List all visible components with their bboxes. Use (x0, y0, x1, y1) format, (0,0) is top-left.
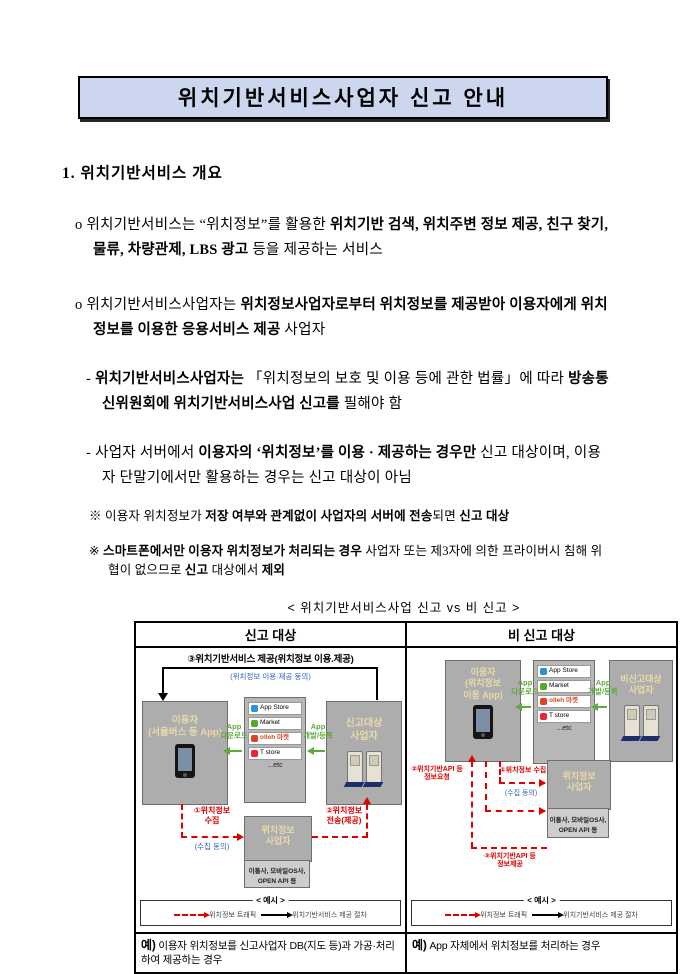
comparison-table: 신고 대상 비 신고 대상 ③위치기반서비스 제공(위치정보 이용.제공) (위… (134, 621, 678, 974)
black-arrow-line-horizontal (162, 667, 378, 669)
transfer-arrowhead-icon (363, 797, 371, 804)
example-row: 예) 이용자 위치정보를 신고사업자 DB(지도 등)과 가공·처리하여 제공하… (136, 932, 676, 972)
server-icon (327, 751, 401, 783)
example-prefix: 예) (412, 938, 427, 952)
badge-label: Market (549, 683, 569, 690)
request-dashed-line-vertical (485, 761, 487, 811)
document-page: 위치기반서비스사업자 신고 안내 1. 위치기반서비스 개요 o 위치기반서비스… (0, 0, 680, 974)
legend-red-dashed-arrow-icon (445, 914, 475, 916)
legend-black-arrow-icon (261, 914, 287, 916)
android-market-badge: Market (537, 680, 591, 693)
provider-box: 비신고대상 사업자 (609, 660, 673, 762)
app-download-arrow-line (229, 750, 242, 752)
text-run: 대상에서 (208, 563, 261, 577)
provide-dashed-line-horizontal (471, 847, 547, 849)
t-store-icon (540, 713, 547, 720)
legend-title: < 예시 > (252, 895, 289, 906)
legend-box: < 예시 > 위치정보 트래픽 위치기반서비스 제공 절차 (140, 900, 401, 926)
section-heading: 1. 위치기반서비스 개요 (62, 161, 614, 183)
bullet: - (86, 445, 91, 461)
app-register-arrowhead-icon (591, 703, 598, 711)
legend-black-label: 위치기반서비스 제공 절차 (292, 910, 367, 920)
page-title: 위치기반서비스사업자 신고 안내 (178, 87, 508, 110)
smartphone-icon (473, 705, 493, 739)
server-tower-icon (366, 751, 382, 783)
app-store-icon (540, 668, 547, 675)
app-store-box: App Store Market olleh 마켓 T store ...etc (533, 660, 595, 764)
transfer-dashed-line-horizontal (312, 836, 368, 838)
panel-non-report-target: 이용자 (위치정보 이용 App) App Store Market olleh… (407, 648, 676, 932)
comparison-body-row: ③위치기반서비스 제공(위치정보 이용.제공) (위치정보 이용·제공 동의) … (136, 648, 676, 932)
paragraph-lbs-overview: o 위치기반서비스는 “위치정보”를 활용한 위치기반 검색, 위치주변 정보 … (62, 213, 614, 263)
server-tower-icon (624, 705, 640, 737)
collect-arrowhead-icon (237, 833, 244, 841)
text-run: 「위치정보의 보호 및 이용 등에 관한 법률」에 따라 (244, 371, 568, 387)
text-run-bold: 위치기반서비스사업자는 (95, 371, 244, 387)
olleh-market-badge: olleh 마켓 (537, 695, 591, 708)
provider-box: 신고대상 사업자 (326, 701, 402, 805)
text-run: 등을 제공하는 서비스 (248, 242, 383, 258)
app-register-label: App 개발/등록 (300, 722, 336, 741)
request-label: ②위치기반API 등 정보요청 (407, 766, 467, 784)
bullet: ※ (89, 509, 102, 523)
badge-label: T store (549, 713, 569, 720)
provide-dashed-line-vertical (471, 761, 473, 848)
request-dashed-line-horizontal (485, 810, 545, 812)
badge-label: olleh 마켓 (549, 698, 578, 705)
service-provision-arrow-label: ③위치기반서비스 제공(위치정보 이용.제공) (136, 651, 405, 665)
bullet: o (75, 217, 83, 233)
example-report-target: 예) 이용자 위치정보를 신고사업자 DB(지도 등)과 가공·처리하여 제공하… (136, 934, 407, 972)
collect-label: ①위치정보 수집 (186, 806, 238, 826)
badge-label: App Store (260, 705, 289, 712)
app-download-label: App 다운로드 (507, 678, 543, 697)
text-run-bold: 스마트폰에서만 이용자 위치정보가 처리되는 경우 (103, 544, 362, 558)
android-market-icon (251, 720, 258, 727)
app-download-arrow-line (521, 706, 531, 708)
table-caption: < 위치기반서비스사업 신고 vs 비 신고 > (134, 597, 674, 616)
app-register-arrow-line (597, 706, 607, 708)
paragraph-lbs-provider: o 위치기반서비스사업자는 위치정보사업자로부터 위치정보를 제공받아 이용자에… (62, 293, 614, 343)
legend-black-label: 위치기반서비스 제공 절차 (563, 910, 638, 920)
collect-dashed-line-horizontal (181, 836, 239, 838)
user-box-label: 이용자 (서울버스 등 App) (143, 702, 227, 740)
app-download-arrowhead-icon (223, 747, 230, 755)
consent-note: (위치정보 이용·제공 동의) (136, 671, 405, 682)
location-provider-subtypes: 이통사, 모바일OS사, OPEN API 등 (244, 860, 310, 888)
location-provider-label: 위치정보 사업자 (548, 761, 610, 794)
legend-red-dashed-arrow-icon (174, 914, 204, 916)
black-arrowhead-down-icon (158, 693, 168, 701)
olleh-market-icon (540, 698, 547, 705)
collect-arrowhead-icon (539, 779, 546, 787)
text-run: 이용자 위치정보가 (105, 509, 205, 523)
user-box: 이용자 (위치정보 이용 App) (445, 660, 521, 762)
legend-black-arrow-icon (532, 914, 558, 916)
text-run-bold: 이용자의 ‘위치정보’를 이용 · 제공하는 경우만 (198, 445, 476, 461)
location-provider-subtypes: 이통사, 모바일OS사, OPEN API 등 (547, 808, 609, 838)
location-provider-box: 위치정보 사업자 (547, 760, 611, 810)
olleh-market-icon (251, 735, 258, 742)
t-store-icon (251, 750, 258, 757)
bullet: - (86, 371, 91, 387)
provide-label: ③위치기반API 등 정보제공 (473, 853, 547, 871)
collect-consent-note: (수집 동의) (497, 788, 545, 798)
app-download-label: App 다운로드 (216, 722, 252, 741)
bullet: o (75, 297, 83, 313)
legend-red-label: 위치정보 트래픽 (209, 910, 256, 920)
app-store-icon (251, 705, 258, 712)
example-non-report-target: 예) App 자체에서 위치정보를 처리하는 경우 (407, 934, 676, 972)
badge-label: Market (260, 720, 280, 727)
example-text: App 자체에서 위치정보를 처리하는 경우 (427, 940, 601, 952)
location-provider-label: 위치정보 사업자 (245, 817, 311, 848)
smartphone-icon (175, 744, 195, 778)
badge-label: App Store (549, 668, 578, 675)
etc-label: ...etc (537, 725, 591, 732)
provide-arrowhead-up-icon (468, 755, 476, 762)
text-run-bold: 신고 (185, 563, 208, 577)
app-register-arrowhead-icon (307, 747, 314, 755)
app-register-label: App 개발/등록 (585, 678, 621, 697)
collect-label: ①위치정보 수집 (495, 767, 551, 776)
app-store-badge: App Store (248, 702, 302, 715)
legend-red-label: 위치정보 트래픽 (480, 910, 527, 920)
server-tower-icon (347, 751, 363, 783)
collect-consent-note: (수집 동의) (186, 841, 238, 852)
server-tower-icon (643, 705, 659, 737)
badge-label: T store (260, 750, 280, 757)
text-run: 위치기반서비스는 “위치정보”를 활용한 (87, 217, 331, 233)
panel-report-target: ③위치기반서비스 제공(위치정보 이용.제공) (위치정보 이용·제공 동의) … (136, 648, 407, 932)
paragraph-law-requirement: - 위치기반서비스사업자는 「위치정보의 보호 및 이용 등에 관한 법률」에 … (62, 367, 614, 417)
header-non-report-target: 비 신고 대상 (407, 623, 676, 646)
app-store-badge: App Store (537, 665, 591, 678)
transfer-label: ②위치정보 전송(제공) (314, 806, 374, 826)
text-run: 위치기반서비스사업자는 (87, 297, 241, 313)
text-run-bold: 저장 여부와 관계없이 사업자의 서버에 전송 (205, 509, 432, 523)
header-report-target: 신고 대상 (136, 623, 407, 646)
text-run: 되면 (433, 509, 460, 523)
text-run: 사업자 (281, 322, 326, 338)
note-smartphone-only: ※ 스마트폰에서만 이용자 위치정보가 처리되는 경우 사업자 또는 제3자에 … (62, 542, 614, 581)
location-provider-box: 위치정보 사업자 (244, 816, 312, 862)
request-arrowhead-icon (539, 807, 546, 815)
user-box: 이용자 (서울버스 등 App) (142, 701, 228, 805)
text-run: 필해야 함 (340, 396, 402, 412)
server-icon (610, 705, 672, 737)
t-store-badge: T store (248, 747, 302, 760)
android-market-badge: Market (248, 717, 302, 730)
app-store-box: App Store Market olleh 마켓 T store ...etc (244, 697, 306, 803)
legend-box: < 예시 > 위치정보 트래픽 위치기반서비스 제공 절차 (411, 900, 672, 926)
app-register-arrow-line (313, 750, 325, 752)
document-title-box: 위치기반서비스사업자 신고 안내 (78, 76, 608, 119)
t-store-badge: T store (537, 710, 591, 723)
olleh-market-badge: olleh 마켓 (248, 732, 302, 745)
text-run-bold: 신고 대상 (459, 509, 509, 523)
example-prefix: 예) (141, 938, 156, 952)
text-run: 사업자 서버에서 (95, 445, 198, 461)
app-download-arrowhead-icon (515, 703, 522, 711)
legend-title: < 예시 > (523, 895, 560, 906)
badge-label: olleh 마켓 (260, 735, 289, 742)
provider-box-label: 신고대상 사업자 (327, 702, 401, 743)
bullet: ※ (89, 544, 100, 558)
text-run-bold: 제외 (262, 563, 285, 577)
paragraph-server-case: - 사업자 서버에서 이용자의 ‘위치정보’를 이용 · 제공하는 경우만 신고… (62, 441, 614, 491)
note-server-transfer: ※ 이용자 위치정보가 저장 여부와 관계없이 사업자의 서버에 전송되면 신고… (62, 507, 614, 526)
etc-label: ...etc (248, 762, 302, 769)
comparison-header-row: 신고 대상 비 신고 대상 (136, 623, 676, 648)
collect-dashed-line-vertical (181, 804, 183, 838)
